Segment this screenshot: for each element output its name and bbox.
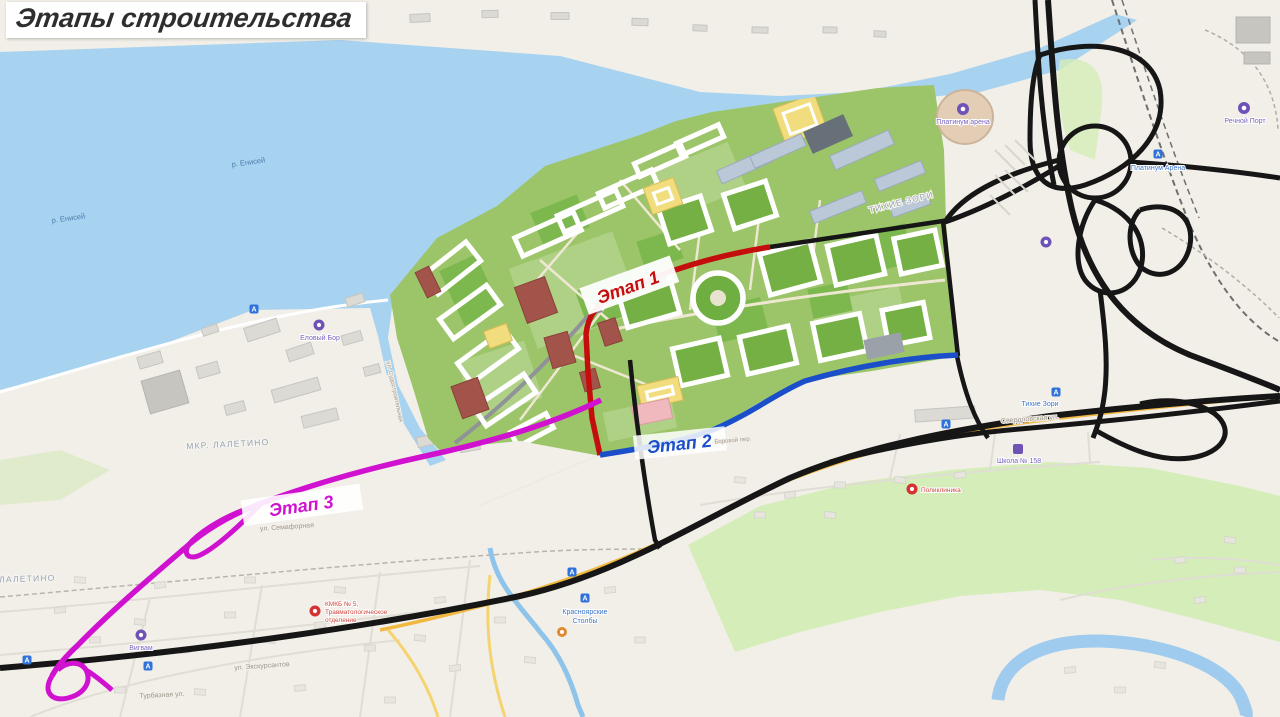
building-shape xyxy=(874,31,886,37)
bus-stop-icon: А xyxy=(250,305,259,314)
building-shape xyxy=(410,13,430,22)
building-shape xyxy=(90,637,101,643)
building-shape xyxy=(752,27,768,34)
bus-stop-glyph: А xyxy=(251,307,256,314)
building-shape xyxy=(1064,666,1076,673)
hospital-label-1: КМКБ № 5, xyxy=(325,601,358,608)
district-laletino-2: МКР. ЛАЛЕТИНО xyxy=(0,573,56,586)
bus-stop-icon: А xyxy=(144,662,153,671)
building-shape xyxy=(245,577,256,583)
poi-river-port: Речной Порт xyxy=(1224,102,1266,125)
building-shape xyxy=(141,370,189,414)
title-box: Этапы строительства xyxy=(6,2,366,38)
building-shape xyxy=(225,612,236,618)
stadium-area xyxy=(937,90,1035,215)
building-shape xyxy=(414,634,426,641)
building-shape xyxy=(813,313,868,360)
bus-stop-icon: А xyxy=(942,420,951,429)
building-shape xyxy=(271,377,321,403)
circular-courtyard xyxy=(693,273,743,323)
bus-stop-glyph: А xyxy=(569,570,574,577)
building-shape xyxy=(1244,52,1270,64)
bus-stop-glyph: А xyxy=(943,422,948,429)
building-shape xyxy=(524,656,536,663)
building-shape xyxy=(1115,687,1126,693)
building-shape xyxy=(365,645,376,651)
bus-stop-icon: А xyxy=(23,656,32,665)
building-shape xyxy=(635,637,646,643)
polyclinic-icon-dot xyxy=(910,487,914,491)
hospital-label-2: Травматологическое xyxy=(325,609,388,616)
bus-stop-glyph: А xyxy=(24,658,29,665)
building-shape xyxy=(54,606,66,613)
building-shape xyxy=(154,581,166,588)
building-shape xyxy=(341,330,363,345)
building-shape xyxy=(672,338,727,386)
building-shape xyxy=(301,408,339,428)
bus-stop-icon: А xyxy=(1052,388,1061,397)
stadium-icon-dot xyxy=(961,107,966,112)
map-canvas: Этап 1 Этап 2 Этап 3 р. Енисей р. Енисей… xyxy=(0,0,1280,717)
elovy-bor-label: Еловый Бор xyxy=(300,334,340,342)
building-shape xyxy=(827,235,885,285)
bus-stop-glyph: А xyxy=(1155,152,1160,159)
street-turbaznaya: Турбазная ул. xyxy=(139,690,184,700)
bus-stop-glyph: А xyxy=(582,596,587,603)
building-shape xyxy=(784,491,796,498)
building-shape xyxy=(434,596,446,603)
transit-stolby-label-1: Красноярские xyxy=(562,609,607,616)
school-icon xyxy=(1013,444,1023,454)
poi-icon-dot xyxy=(1044,240,1048,244)
food-poi-icon-dot xyxy=(560,630,564,634)
building-shape xyxy=(115,687,126,693)
bus-stop-icon: А xyxy=(568,568,577,577)
elovy-bor-icon-dot xyxy=(317,323,321,327)
transit-platinum-label: Платинум Арена xyxy=(1131,165,1185,172)
hospital-label-3: отделение xyxy=(325,617,357,624)
page-title: Этапы строительства xyxy=(14,3,354,34)
building-shape xyxy=(632,18,648,26)
building-shape xyxy=(224,401,246,416)
bus-stop-icon: А xyxy=(1154,150,1163,159)
polyclinic-label: Поликлиника xyxy=(921,487,961,494)
building-shape xyxy=(495,617,506,623)
street-ekskursantov: ул. Экскурсантов xyxy=(234,661,290,672)
building-shape xyxy=(1236,17,1270,43)
building-shape xyxy=(482,10,498,18)
building-shape xyxy=(734,476,746,483)
building-shape xyxy=(1194,596,1206,603)
building-shape xyxy=(551,13,569,20)
vigvam-label: Вигвам xyxy=(129,645,153,652)
building-shape xyxy=(1154,661,1166,668)
bus-stop-icon: А xyxy=(581,594,590,603)
building-shape xyxy=(363,364,381,377)
field-shape-3 xyxy=(0,450,110,505)
building-shape xyxy=(604,586,616,593)
building-shape xyxy=(894,476,906,483)
building-shape xyxy=(823,27,837,33)
school-label: Школа № 158 xyxy=(997,458,1041,465)
hospital-icon-dot xyxy=(313,609,317,613)
river-port-icon-dot xyxy=(1242,106,1247,111)
building-shape xyxy=(755,512,766,518)
building-shape xyxy=(824,511,836,518)
building-shape xyxy=(74,576,86,583)
building-shape xyxy=(1235,567,1246,573)
building-shape xyxy=(286,342,314,361)
building-shape xyxy=(294,684,306,691)
building-shape xyxy=(449,664,461,671)
building-shape xyxy=(134,618,146,625)
building-shape xyxy=(1224,536,1236,543)
district-laletino: МКР. ЛАЛЕТИНО xyxy=(186,437,270,451)
building-shape xyxy=(739,326,796,374)
building-shape xyxy=(196,361,220,379)
bus-stop-glyph: А xyxy=(145,664,150,671)
building-shape xyxy=(954,471,966,478)
building-shape xyxy=(194,688,206,695)
building-shape xyxy=(334,586,346,593)
poi-elovy-bor: Еловый Бор xyxy=(300,320,340,343)
building-shape xyxy=(693,25,707,32)
building-shape xyxy=(894,230,943,274)
transit-tihie-label: Тихие Зори xyxy=(1021,401,1058,408)
vigvam-icon-dot xyxy=(139,633,143,637)
river-loop xyxy=(998,641,1246,717)
building-shape xyxy=(1174,556,1186,563)
transit-stolby-label-2: Столбы xyxy=(572,617,597,625)
building-shape xyxy=(137,351,163,369)
street-semafornaya: ул. Семафорная xyxy=(260,522,315,533)
river-port-label: Речной Порт xyxy=(1224,117,1266,125)
building-shape xyxy=(385,697,396,703)
construction-stages-map-slide: Этап 1 Этап 2 Этап 3 р. Енисей р. Енисей… xyxy=(0,0,1280,717)
stadium-building xyxy=(937,90,993,144)
bus-stop-glyph: А xyxy=(1053,390,1058,397)
poi-school: Школа № 158 xyxy=(997,444,1041,465)
stadium-label: Платинум арена xyxy=(936,119,990,126)
building-shape xyxy=(835,482,846,488)
